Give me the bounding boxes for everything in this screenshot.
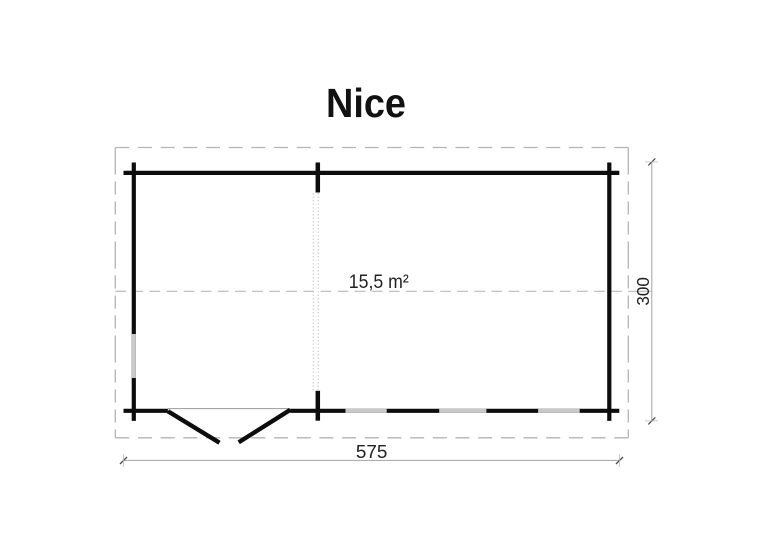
svg-text:300: 300 [633,277,653,306]
svg-text:575: 575 [356,441,388,462]
svg-text:15,5 m²: 15,5 m² [349,272,409,293]
svg-text:Nice: Nice [326,80,406,126]
